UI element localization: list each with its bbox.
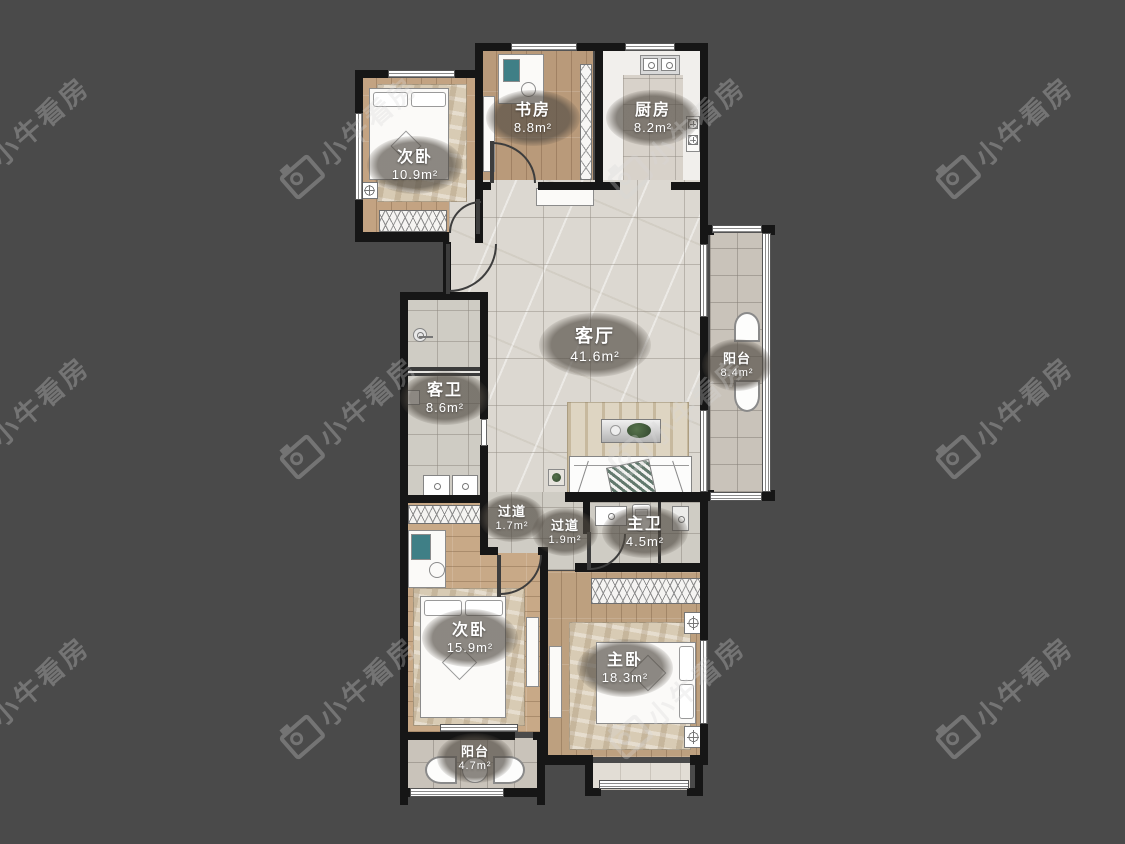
door-leaf <box>497 555 501 597</box>
pillow <box>465 600 503 616</box>
door-leaf <box>476 199 480 234</box>
bench <box>549 646 562 718</box>
burner-icon <box>688 119 698 129</box>
window <box>712 225 762 233</box>
floor-plan: 次卧 10.9m² 书房 8.8m² 厨房 8.2m² 客厅 41.6m² 阳台… <box>355 40 775 805</box>
wall <box>565 492 705 502</box>
wall <box>585 788 601 796</box>
wardrobe <box>580 64 592 180</box>
window <box>710 492 762 501</box>
camera-icon <box>934 153 982 201</box>
camera-icon <box>278 153 326 201</box>
wall <box>583 502 590 534</box>
watermark: 小牛看房 <box>931 626 1081 764</box>
screenshot-stage: 次卧 10.9m² 书房 8.8m² 厨房 8.2m² 客厅 41.6m² 阳台… <box>0 0 1125 844</box>
wall <box>690 755 708 765</box>
plant <box>552 473 561 482</box>
wall <box>400 292 408 805</box>
wardrobe <box>379 210 447 232</box>
watermark: 小牛看房 <box>931 66 1081 204</box>
wall <box>595 51 603 184</box>
door-leaf <box>587 532 591 570</box>
wardrobe <box>408 505 481 524</box>
window <box>511 43 577 51</box>
picture-frame <box>411 534 431 560</box>
bathroom-sink <box>595 506 627 526</box>
watermark-text: 小牛看房 <box>965 66 1081 174</box>
wall <box>483 182 491 190</box>
burner-icon <box>688 135 698 145</box>
wall <box>695 765 703 793</box>
bathroom-sink <box>452 475 478 496</box>
window <box>599 780 689 789</box>
pillow <box>411 92 446 107</box>
wall <box>400 732 515 740</box>
watermark-text: 小牛看房 <box>965 346 1081 454</box>
wall <box>400 292 488 300</box>
wall <box>480 547 498 555</box>
camera-icon <box>278 713 326 761</box>
chair <box>429 562 445 578</box>
sink-basin <box>643 58 658 71</box>
balcony-chair <box>425 756 457 784</box>
floor-kitchen-tile <box>623 75 683 183</box>
window <box>355 113 363 200</box>
shower <box>672 506 689 531</box>
plant <box>627 423 651 438</box>
balcony-chair <box>493 756 525 784</box>
pillow <box>373 92 408 107</box>
bathroom-door <box>481 419 487 446</box>
door-leaf <box>490 141 494 183</box>
camera-icon <box>278 433 326 481</box>
window <box>700 244 708 317</box>
wall <box>540 547 548 757</box>
window <box>762 233 771 492</box>
window <box>440 724 518 732</box>
watermark: 小牛看房 <box>931 346 1081 484</box>
watermark: 小牛看房 <box>0 626 97 764</box>
toilet <box>632 504 651 532</box>
sink-basin <box>661 58 676 71</box>
wall <box>575 43 627 51</box>
pillow <box>679 684 694 719</box>
bowl <box>610 425 621 436</box>
wall <box>600 182 620 190</box>
wall <box>671 182 703 190</box>
camera-icon <box>934 433 982 481</box>
chair <box>521 82 536 97</box>
window <box>700 640 708 724</box>
shower-icon <box>413 328 427 342</box>
watermark-text: 小牛看房 <box>0 626 97 734</box>
floor-balcony-right <box>710 231 764 492</box>
wall <box>700 315 708 412</box>
wall <box>700 722 708 757</box>
balcony-chair <box>734 312 760 342</box>
wall <box>355 232 449 242</box>
wall <box>355 70 390 78</box>
camera-icon <box>934 713 982 761</box>
wall <box>483 43 513 51</box>
wall <box>480 300 488 419</box>
pillow <box>679 646 694 681</box>
floor-register-icon <box>361 182 378 199</box>
window <box>410 788 504 797</box>
watermark-text: 小牛看房 <box>965 626 1081 734</box>
picture-frame <box>503 59 520 82</box>
shoe-cabinet <box>536 188 594 206</box>
wall <box>502 788 539 797</box>
window <box>625 43 675 51</box>
shower-arm <box>419 336 433 338</box>
half-wall <box>405 367 481 376</box>
entry-door-leaf <box>446 244 450 294</box>
bathroom-sink <box>423 475 450 496</box>
pillow <box>424 600 462 616</box>
window <box>700 410 708 492</box>
wall <box>400 495 488 503</box>
window-seat <box>526 617 539 687</box>
balcony-table <box>462 757 488 783</box>
watermark-text: 小牛看房 <box>0 346 97 454</box>
wall <box>700 43 708 246</box>
balcony-chair <box>734 380 760 412</box>
glass-divider <box>658 502 661 564</box>
wall <box>538 182 600 190</box>
window <box>388 70 455 78</box>
watermark: 小牛看房 <box>0 66 97 204</box>
wardrobe <box>591 578 702 604</box>
watermark-text: 小牛看房 <box>0 66 97 174</box>
watermark: 小牛看房 <box>0 346 97 484</box>
